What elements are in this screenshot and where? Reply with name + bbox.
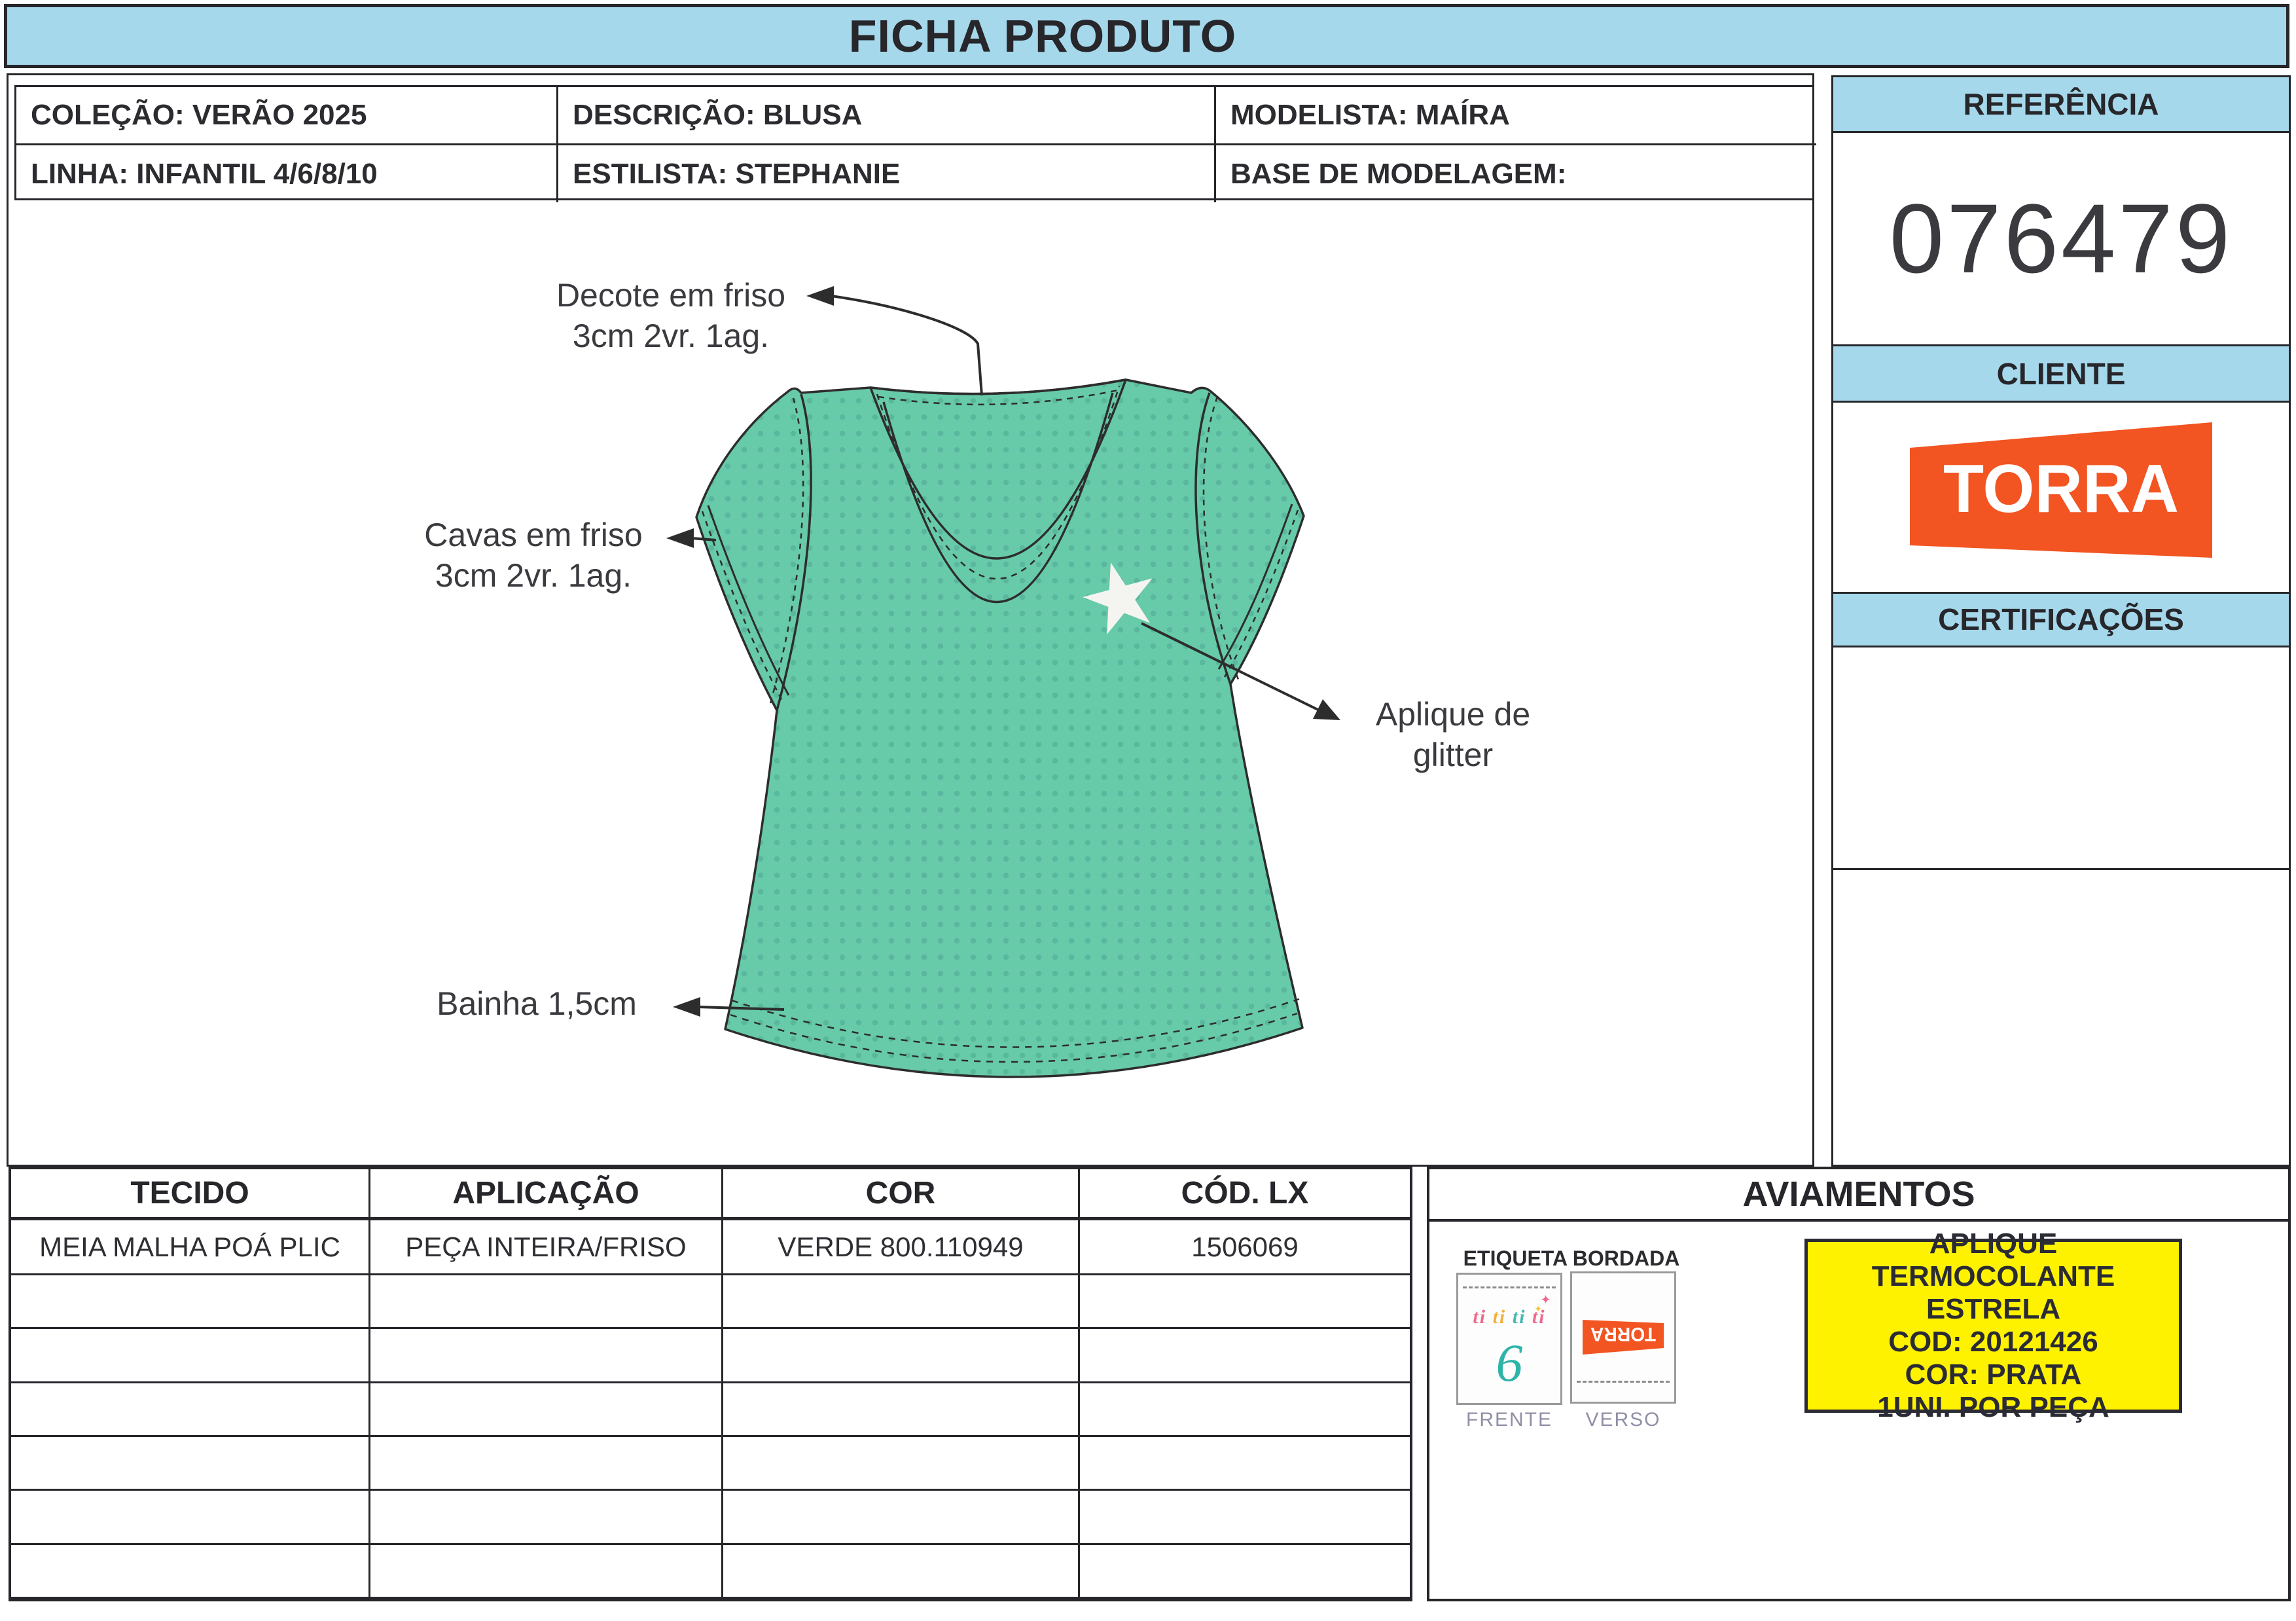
table-cell [1080, 1545, 1410, 1599]
tag-stitch-line [1577, 1381, 1670, 1383]
table-cell [370, 1437, 723, 1491]
table-cell [723, 1275, 1080, 1329]
table-cell [11, 1545, 370, 1599]
table-cell [370, 1383, 723, 1437]
table-cell: 1506069 [1080, 1220, 1410, 1275]
aplique-termocolante-note: APLIQUE TERMOCOLANTE ESTRELA COD: 201214… [1804, 1239, 2182, 1413]
table-cell [1080, 1383, 1410, 1437]
tag-brand-text: ti ti ti ti [1458, 1306, 1560, 1328]
table-cell [723, 1437, 1080, 1491]
table-cell [370, 1545, 723, 1599]
table-cell [11, 1329, 370, 1383]
annotation-decote: Decote em friso 3cm 2vr. 1ag. [517, 275, 825, 356]
sparkle-icon: ✦ [1534, 1303, 1542, 1315]
etiqueta-verso-tag: TORRA [1570, 1271, 1676, 1404]
annotation-bainha: Bainha 1,5cm [393, 983, 681, 1024]
col-header-cor: COR [723, 1169, 1080, 1220]
table-cell [11, 1491, 370, 1544]
etiqueta-bordada-label: ETIQUETA BORDADA [1450, 1247, 1693, 1271]
table-cell [723, 1383, 1080, 1437]
tag-size-number: 6 [1458, 1332, 1560, 1394]
table-cell [11, 1275, 370, 1329]
col-header-aplicacao: APLICAÇÃO [370, 1169, 723, 1220]
table-cell [1080, 1275, 1410, 1329]
table-cell [723, 1491, 1080, 1544]
table-cell [1080, 1437, 1410, 1491]
table-cell [370, 1491, 723, 1544]
table-cell: MEIA MALHA POÁ PLIC [11, 1220, 370, 1275]
annotation-aplique: Aplique de glitter [1302, 694, 1604, 775]
garment-body [696, 380, 1304, 1077]
frente-caption: FRENTE [1456, 1409, 1562, 1431]
table-cell [723, 1545, 1080, 1599]
col-header-cod-lx: CÓD. LX [1080, 1169, 1410, 1220]
ficha-produto-sheet: FICHA PRODUTO COLEÇÃO: VERÃO 2025 DESCRI… [0, 0, 2296, 1621]
table-cell [11, 1437, 370, 1491]
table-cell: PEÇA INTEIRA/FRISO [370, 1220, 723, 1275]
table-cell [723, 1329, 1080, 1383]
table-cell [11, 1383, 370, 1437]
table-cell [1080, 1329, 1410, 1383]
col-header-tecido: TECIDO [11, 1169, 370, 1220]
aviamentos-panel: AVIAMENTOS ETIQUETA BORDADA ti ti ti ti … [1427, 1167, 2291, 1601]
verso-caption: VERSO [1570, 1409, 1676, 1431]
svg-text:TORRA: TORRA [1590, 1323, 1656, 1345]
annotation-cavas: Cavas em friso 3cm 2vr. 1ag. [380, 515, 687, 596]
aviamentos-title: AVIAMENTOS [1429, 1169, 2288, 1222]
table-cell: VERDE 800.110949 [723, 1220, 1080, 1275]
spec-table: TECIDO APLICAÇÃO COR CÓD. LX MEIA MALHA … [9, 1167, 1412, 1601]
etiqueta-frente-tag: ti ti ti ti ✦ ✦ 6 [1456, 1273, 1562, 1405]
table-cell [370, 1329, 723, 1383]
table-cell [1080, 1491, 1410, 1544]
table-cell [370, 1275, 723, 1329]
tag-stitch-line [1463, 1286, 1556, 1288]
